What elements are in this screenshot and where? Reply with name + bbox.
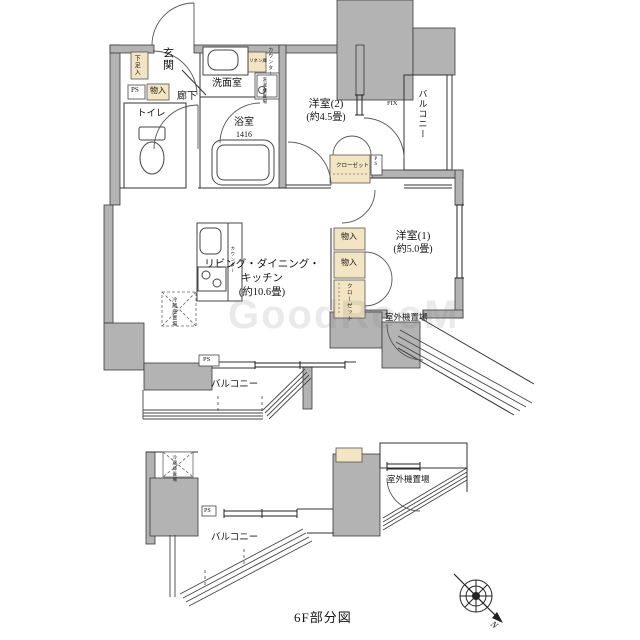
label-balcony-south: バルコニー xyxy=(211,381,258,391)
room-label-ldk-line1: リビング・ダイニング・ xyxy=(196,259,328,270)
label-closet-bedroom1: クローゼット xyxy=(345,283,351,322)
plan-caption: 6F部分図 xyxy=(294,611,352,625)
label-laundry-space: 洗濯機置場 xyxy=(262,77,267,97)
room-label-washroom: 洗面室 xyxy=(212,79,242,90)
wash-basin-icon xyxy=(203,47,248,75)
label-storage2-bedroom1: 物入 xyxy=(341,259,357,267)
label-balcony-east: バルコニー xyxy=(417,89,426,139)
label-closet-bedroom2: クローゼット xyxy=(336,164,369,170)
room-label-bedroom1: 洋室(1) xyxy=(363,231,463,243)
label-ps-kitchen: PS xyxy=(203,357,210,364)
room-label-ldk-line2: キッチン xyxy=(196,273,328,284)
room-label-genkan: 玄関 xyxy=(161,47,173,71)
label-ps-bedroom2: PS xyxy=(373,157,378,167)
label-bedroom1-size: (約5.0畳) xyxy=(363,245,463,256)
room-label-toilet: トイレ xyxy=(137,110,166,120)
label-fix-window: FIX xyxy=(387,101,397,108)
label-balcony-lower: バルコニー xyxy=(211,534,258,544)
label-bathroom-size: 1416 xyxy=(218,131,270,139)
room-label-bathroom: 浴室 xyxy=(218,118,270,129)
label-bedroom2-size: (約4.5畳) xyxy=(275,113,377,124)
floor-plan-page: N GoodRooM 玄関 下足入 PS 物入 廊下 トイレ 洗面室 リネン庫 … xyxy=(0,0,640,640)
label-ps-entry: PS xyxy=(131,87,139,94)
bathtub-icon xyxy=(212,140,274,185)
label-ps-lower: PS xyxy=(204,508,211,514)
room-label-bedroom2: 洋室(2) xyxy=(275,99,377,111)
label-shoe-box: 下足入 xyxy=(133,55,139,76)
label-storage1-bedroom1: 物入 xyxy=(341,233,357,241)
label-counter-wash: カウンター xyxy=(267,47,272,77)
label-refrigerator-space: 冷蔵庫置場 xyxy=(171,297,176,321)
label-linen: リネン庫 xyxy=(249,59,267,64)
label-refrigerator-lower: 冷蔵庫置場 xyxy=(172,455,177,475)
label-ldk-size: (約10.6畳) xyxy=(196,287,328,298)
label-storage-entry: 物入 xyxy=(150,87,166,95)
toilet-icon xyxy=(139,127,165,174)
compass-icon: N xyxy=(454,574,503,631)
balcony-dashes xyxy=(205,396,262,588)
label-outdoor-unit-lower: 室外機置場 xyxy=(387,475,430,484)
label-counter-kitchen: カウンター xyxy=(230,246,235,274)
label-outdoor-unit-main: 室外機置場 xyxy=(385,313,428,322)
room-label-hallway: 廊下 xyxy=(177,92,197,103)
